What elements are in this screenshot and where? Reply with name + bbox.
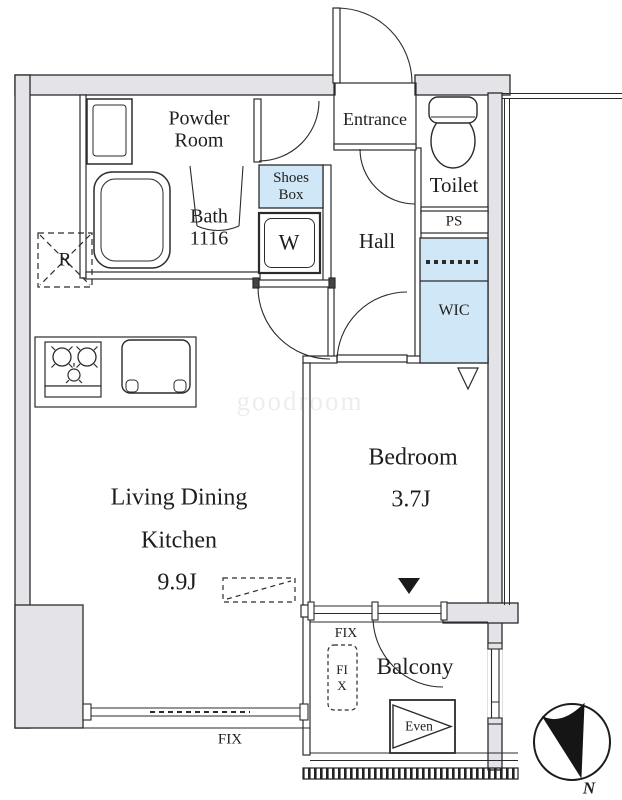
label-toilet: Toilet bbox=[430, 174, 479, 198]
wic-opening-marker bbox=[458, 368, 478, 389]
label-entrance: Entrance bbox=[343, 109, 407, 129]
label-ldk-size: 9.9J bbox=[157, 570, 196, 597]
floorplan-page: Powder Room Bath 1116 Entrance Toilet Sh… bbox=[0, 0, 622, 800]
north-arrow-icon bbox=[534, 704, 610, 780]
ldk-door-leaf bbox=[258, 280, 330, 287]
label-bath: Bath 1116 bbox=[174, 206, 244, 251]
door-direction-marker bbox=[398, 578, 420, 594]
label-bedroom-size: 3.7J bbox=[391, 487, 430, 514]
toilet-icon bbox=[429, 97, 477, 168]
entrance-door-leaf bbox=[333, 8, 340, 83]
boundary-lines bbox=[502, 94, 622, 606]
label-bedroom: Bedroom bbox=[368, 445, 457, 472]
bedroom-door-leaf bbox=[337, 355, 407, 362]
vanity-sink-icon bbox=[87, 99, 132, 164]
label-fix-main: FIX bbox=[218, 732, 242, 749]
entrance-hall-door-arc bbox=[360, 149, 415, 204]
stove-icon bbox=[45, 342, 101, 397]
powder-door-arc bbox=[259, 101, 319, 161]
label-fix-balcony: FIX bbox=[335, 626, 358, 642]
label-fix-balcony-vertical: FIX bbox=[336, 662, 348, 695]
label-hall: Hall bbox=[359, 230, 395, 254]
label-shoes-box: Shoes Box bbox=[265, 170, 317, 204]
wic-zone bbox=[420, 238, 488, 363]
label-wic: WIC bbox=[438, 302, 469, 320]
label-ldk-line2: Kitchen bbox=[141, 528, 217, 555]
label-powder-room: Powder Room bbox=[147, 108, 252, 153]
label-ldk-line1: Living Dining bbox=[111, 485, 248, 512]
kitchen-sink-icon bbox=[122, 340, 190, 393]
powder-room-door-leaf bbox=[254, 99, 261, 162]
hatch-band bbox=[303, 768, 518, 779]
watermark: goodroom bbox=[237, 386, 364, 416]
label-evacuation-hatch: Even bbox=[405, 718, 433, 733]
ldk-door-arc bbox=[258, 287, 330, 359]
bathtub-icon bbox=[94, 172, 170, 268]
label-refrigerator: R bbox=[59, 249, 72, 270]
bedroom-door-arc bbox=[337, 292, 407, 362]
label-balcony: Balcony bbox=[377, 654, 454, 680]
entrance-door-arc bbox=[337, 8, 412, 83]
dashed-counter-symbol bbox=[223, 578, 295, 602]
label-washer: W bbox=[279, 231, 300, 256]
label-compass-north: N bbox=[583, 778, 595, 797]
label-ps: PS bbox=[446, 214, 463, 231]
